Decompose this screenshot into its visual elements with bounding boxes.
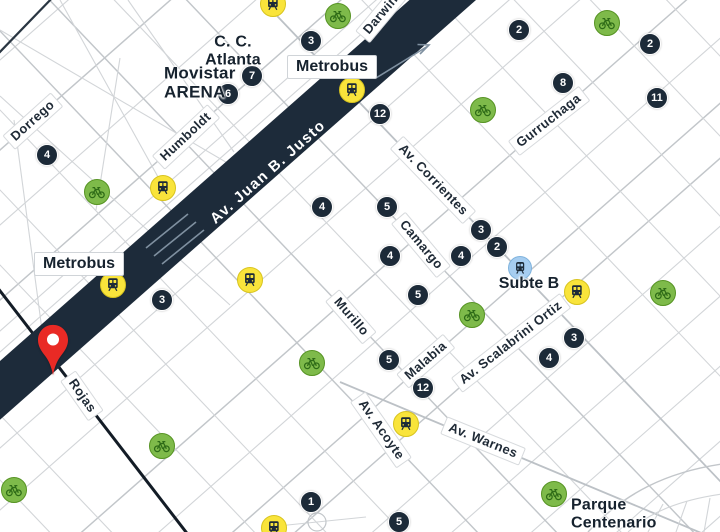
ic-bike-icon (153, 437, 171, 455)
poi-label: ParqueCentenario (571, 496, 657, 531)
bike-station-marker[interactable] (325, 3, 351, 29)
ic-bus-icon (343, 81, 361, 99)
numbered-marker[interactable]: 5 (378, 349, 400, 371)
numbered-marker[interactable]: 5 (376, 196, 398, 218)
bike-station-marker[interactable] (84, 179, 110, 205)
numbered-marker[interactable]: 4 (450, 245, 472, 267)
map-canvas[interactable]: Av. Juan B. Justo DorregoHumboldtDarwinG… (0, 0, 720, 532)
ic-bike-icon (598, 14, 616, 32)
numbered-marker[interactable]: 4 (311, 196, 333, 218)
bike-station-marker[interactable] (149, 433, 175, 459)
bike-station-marker[interactable] (1, 477, 27, 503)
numbered-marker[interactable]: 11 (646, 87, 668, 109)
numbered-marker[interactable]: 2 (486, 236, 508, 258)
numbered-marker[interactable]: 12 (412, 377, 434, 399)
ic-bike-icon (5, 481, 23, 499)
bike-station-marker[interactable] (470, 97, 496, 123)
transit-station-label: Metrobus (287, 55, 377, 79)
numbered-marker[interactable]: 4 (538, 347, 560, 369)
ic-bike-icon (654, 284, 672, 302)
numbered-marker[interactable]: 3 (151, 289, 173, 311)
ic-bus-icon (265, 519, 283, 532)
ic-bus-icon (568, 283, 586, 301)
numbered-marker[interactable]: 3 (563, 327, 585, 349)
numbered-marker[interactable]: 8 (552, 72, 574, 94)
ic-bus-icon (264, 0, 282, 13)
ic-bike-icon (545, 485, 563, 503)
ic-bus-icon (154, 179, 172, 197)
numbered-marker[interactable]: 12 (369, 103, 391, 125)
numbered-marker[interactable]: 5 (388, 511, 410, 532)
numbered-marker[interactable]: 4 (379, 245, 401, 267)
ic-bike-icon (303, 354, 321, 372)
ic-bike-icon (474, 101, 492, 119)
numbered-marker[interactable]: 3 (300, 30, 322, 52)
poi-label: MovistarARENA (164, 64, 236, 101)
pin-icon (37, 324, 69, 377)
transit-station-label: Subte B (499, 275, 559, 293)
ic-bike-icon (88, 183, 106, 201)
ic-bus-icon (397, 415, 415, 433)
numbered-marker[interactable]: 2 (639, 33, 661, 55)
ic-bike-icon (329, 7, 347, 25)
numbered-marker[interactable]: 3 (470, 219, 492, 241)
bus-stop-marker[interactable] (150, 175, 176, 201)
ic-bike-icon (463, 306, 481, 324)
numbered-marker[interactable]: 5 (407, 284, 429, 306)
ic-bus-icon (241, 271, 259, 289)
ic-bus-icon (104, 276, 122, 294)
transit-station-label: Metrobus (34, 252, 124, 276)
bus-stop-marker[interactable] (339, 77, 365, 103)
location-pin-icon[interactable] (37, 324, 69, 377)
bus-stop-marker[interactable] (237, 267, 263, 293)
bike-station-marker[interactable] (650, 280, 676, 306)
numbered-marker[interactable]: 4 (36, 144, 58, 166)
bike-station-marker[interactable] (299, 350, 325, 376)
ic-train-icon (512, 260, 528, 276)
bike-station-marker[interactable] (594, 10, 620, 36)
bus-stop-marker[interactable] (564, 279, 590, 305)
bike-station-marker[interactable] (541, 481, 567, 507)
bike-station-marker[interactable] (459, 302, 485, 328)
bus-stop-marker[interactable] (393, 411, 419, 437)
numbered-marker[interactable]: 2 (508, 19, 530, 41)
numbered-marker[interactable]: 1 (300, 491, 322, 513)
